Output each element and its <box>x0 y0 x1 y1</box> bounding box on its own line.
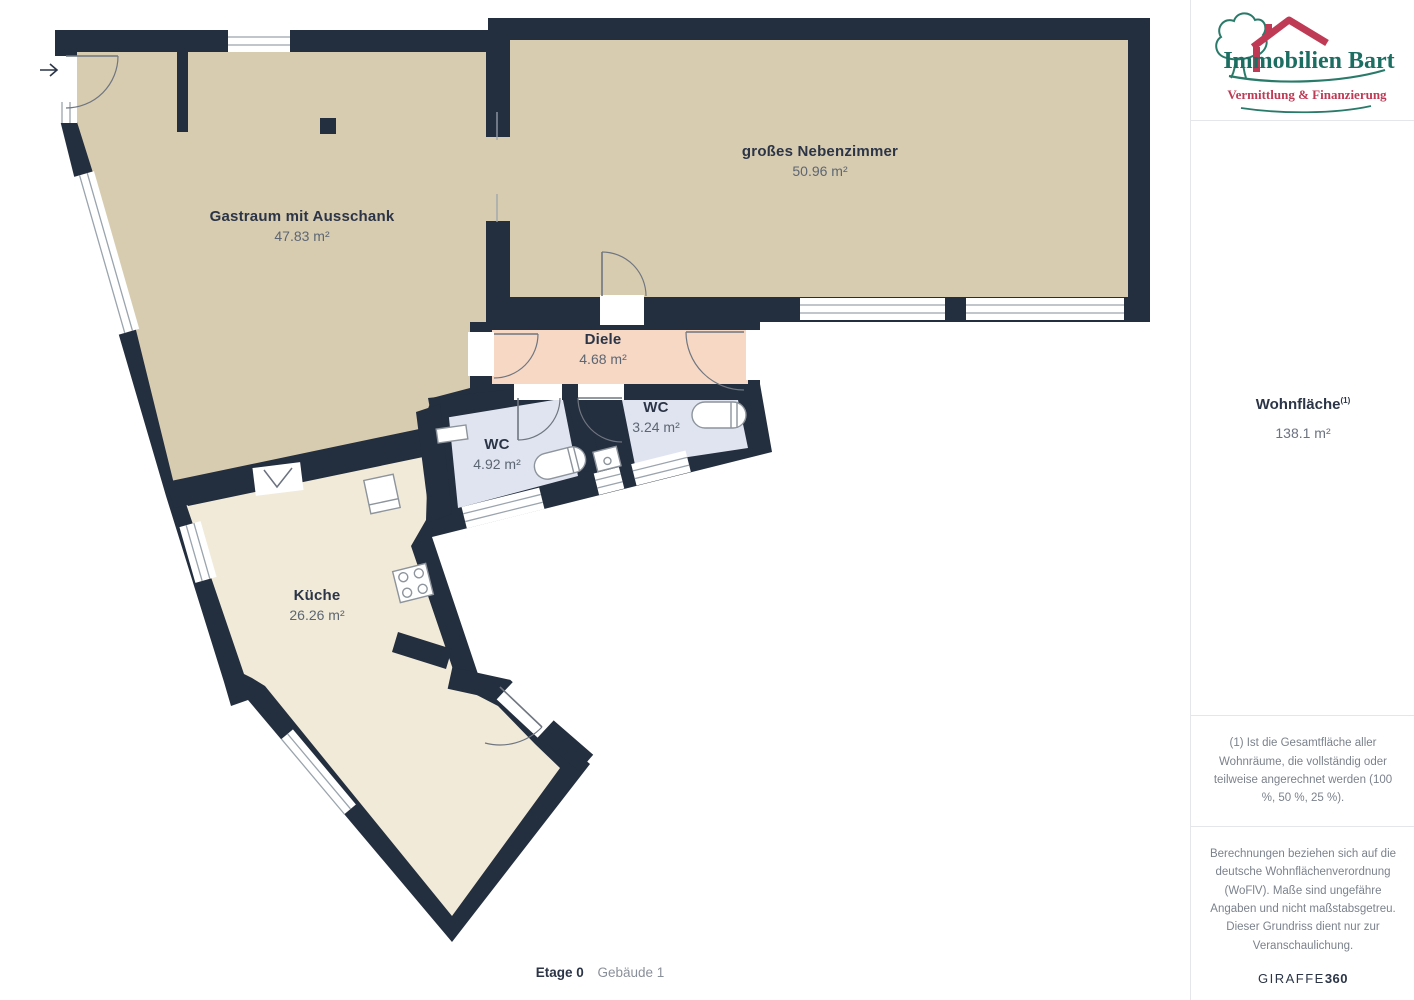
info-sidebar: Immobilien Bart Vermittlung & Finanzieru… <box>1190 0 1414 1000</box>
area-summary: Wohnfläche(1) 138.1 m² <box>1191 121 1414 715</box>
room-opening <box>486 137 510 221</box>
logo-swoosh <box>1241 106 1371 112</box>
logo-subtitle: Vermittlung & Finanzierung <box>1227 87 1387 102</box>
floor-name: Etage 0 <box>536 965 584 980</box>
brand-mark: GIRAFFE360 <box>1209 969 1397 990</box>
toilet-icon <box>692 402 746 428</box>
logo-title: Immobilien Bart <box>1223 48 1394 74</box>
area-label-superscript: (1) <box>1340 396 1350 405</box>
floor-label: Etage 0 Gebäude 1 <box>440 965 760 980</box>
column-marker <box>320 118 336 134</box>
room-diele <box>492 330 748 384</box>
disclaimer-text: Berechnungen beziehen sich auf die deuts… <box>1209 845 1397 955</box>
floorplan-canvas: Gastraum mit Ausschank 47.83 m² großes N… <box>0 0 1190 1000</box>
area-label-text: Wohnfläche <box>1256 396 1341 413</box>
company-logo: Immobilien Bart Vermittlung & Finanzieru… <box>1205 0 1401 120</box>
disclaimer-block: Berechnungen beziehen sich auf die deuts… <box>1191 827 1414 1000</box>
logo-block: Immobilien Bart Vermittlung & Finanzieru… <box>1191 0 1414 121</box>
brand-name: GIRAFFE <box>1258 971 1325 986</box>
floorplan-page: Gastraum mit Ausschank 47.83 m² großes N… <box>0 0 1414 1000</box>
footnote-block: (1) Ist die Gesamtfläche aller Wohnräume… <box>1191 715 1414 827</box>
floorplan-svg <box>0 0 1190 1000</box>
area-summary-value: 138.1 m² <box>1275 425 1330 441</box>
area-summary-label: Wohnfläche(1) <box>1256 396 1351 413</box>
building-name: Gebäude 1 <box>597 965 664 980</box>
cupboard-icon <box>364 474 400 513</box>
brand-suffix: 360 <box>1325 971 1348 986</box>
